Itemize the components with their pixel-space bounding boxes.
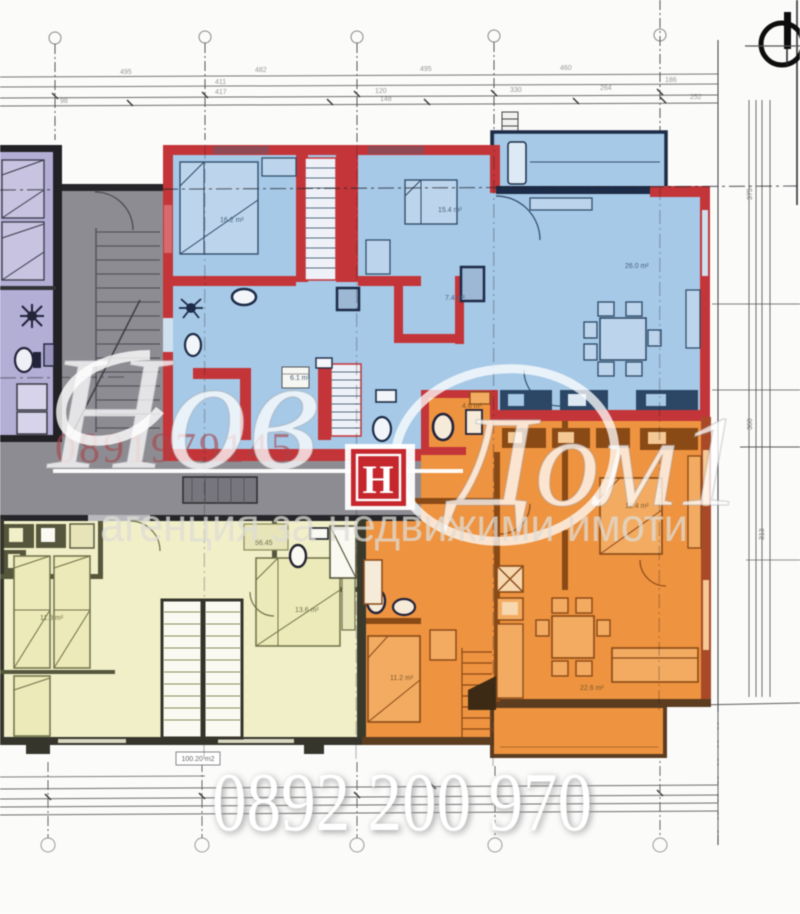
svg-text:417: 417 xyxy=(215,89,227,96)
svg-text:148: 148 xyxy=(380,96,392,103)
svg-text:330: 330 xyxy=(510,87,522,94)
svg-text:495: 495 xyxy=(420,66,432,73)
svg-text:482: 482 xyxy=(255,67,267,74)
svg-text:11.8 m²: 11.8 m² xyxy=(40,615,64,622)
svg-text:98: 98 xyxy=(60,98,68,105)
svg-text:264: 264 xyxy=(600,85,612,92)
svg-text:186: 186 xyxy=(665,77,677,84)
svg-text:13.6 m²: 13.6 m² xyxy=(295,607,319,614)
svg-text:15.4 m²: 15.4 m² xyxy=(438,207,462,214)
svg-text:375: 375 xyxy=(747,188,754,200)
svg-text:360: 360 xyxy=(747,418,754,430)
svg-text:120: 120 xyxy=(375,88,387,95)
svg-text:313: 313 xyxy=(759,528,766,540)
svg-text:100.20 m2: 100.20 m2 xyxy=(181,756,214,763)
svg-text:H: H xyxy=(362,457,393,502)
svg-text:26.0 m²: 26.0 m² xyxy=(625,263,649,270)
svg-text:7.4 m²: 7.4 m² xyxy=(445,295,466,302)
svg-text:16.2 m²: 16.2 m² xyxy=(220,217,244,224)
svg-text:22.6 m²: 22.6 m² xyxy=(580,685,604,692)
svg-text:252: 252 xyxy=(690,94,702,101)
svg-text:Нов: Нов xyxy=(46,323,320,504)
svg-text:11.2 m²: 11.2 m² xyxy=(390,675,414,682)
svg-text:0892 200 970: 0892 200 970 xyxy=(212,756,592,849)
svg-text:495: 495 xyxy=(120,69,132,76)
svg-text:411: 411 xyxy=(215,79,226,86)
svg-text:460: 460 xyxy=(560,65,572,72)
